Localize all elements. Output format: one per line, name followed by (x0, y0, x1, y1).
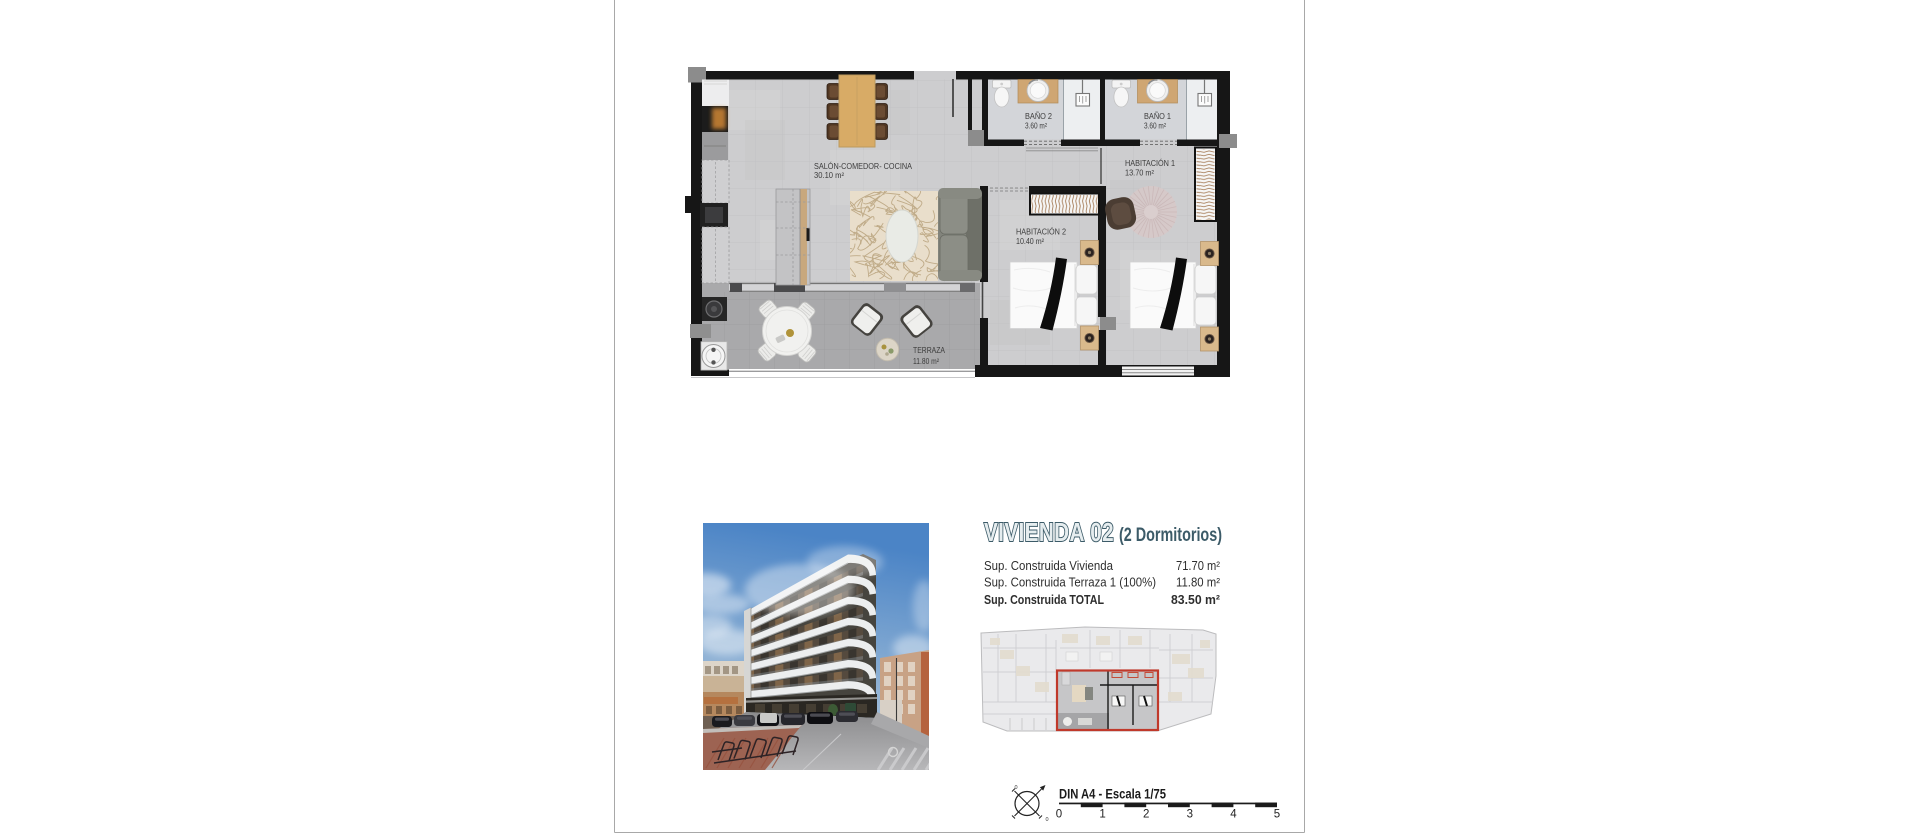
svg-text:Sup. Construida TOTAL: Sup. Construida TOTAL (984, 592, 1104, 607)
svg-text:Sup. Construida Terraza 1 (100: Sup. Construida Terraza 1 (100%) (984, 575, 1156, 590)
svg-text:(2 Dormitorios): (2 Dormitorios) (1119, 525, 1222, 546)
svg-text:13.70 m²: 13.70 m² (1125, 169, 1154, 178)
svg-text:3.60 m²: 3.60 m² (1025, 122, 1047, 131)
svg-text:5: 5 (1274, 809, 1280, 821)
svg-text:TERRAZA: TERRAZA (913, 345, 945, 355)
svg-text:VIVIENDA 02: VIVIENDA 02 (984, 517, 1114, 547)
svg-text:BAÑO 2: BAÑO 2 (1025, 111, 1052, 121)
svg-text:4: 4 (1230, 809, 1237, 821)
svg-text:BAÑO 1: BAÑO 1 (1144, 111, 1171, 121)
svg-text:0: 0 (1015, 785, 1018, 791)
svg-text:3: 3 (1187, 809, 1193, 821)
svg-text:11.80 m²: 11.80 m² (913, 357, 939, 366)
svg-text:3.60 m²: 3.60 m² (1144, 122, 1166, 131)
svg-text:HABITACIÓN 1: HABITACIÓN 1 (1125, 158, 1175, 168)
svg-text:HABITACIÓN 2: HABITACIÓN 2 (1016, 227, 1066, 237)
svg-text:Sup. Construida Vivienda: Sup. Construida Vivienda (984, 558, 1114, 573)
svg-text:71.70 m²: 71.70 m² (1176, 558, 1221, 573)
svg-text:0: 0 (1056, 809, 1062, 821)
svg-text:SALÓN-COMEDOR- COCINA: SALÓN-COMEDOR- COCINA (814, 161, 912, 171)
svg-text:1: 1 (1099, 809, 1105, 821)
svg-text:11.80 m²: 11.80 m² (1176, 575, 1221, 590)
svg-text:30.10 m²: 30.10 m² (814, 171, 844, 180)
svg-text:10.40 m²: 10.40 m² (1016, 237, 1044, 246)
svg-text:83.50 m²: 83.50 m² (1171, 592, 1220, 607)
svg-text:0: 0 (1046, 817, 1049, 823)
svg-text:2: 2 (1143, 809, 1149, 821)
svg-text:DIN A4 - Escala 1/75: DIN A4 - Escala 1/75 (1059, 786, 1166, 802)
